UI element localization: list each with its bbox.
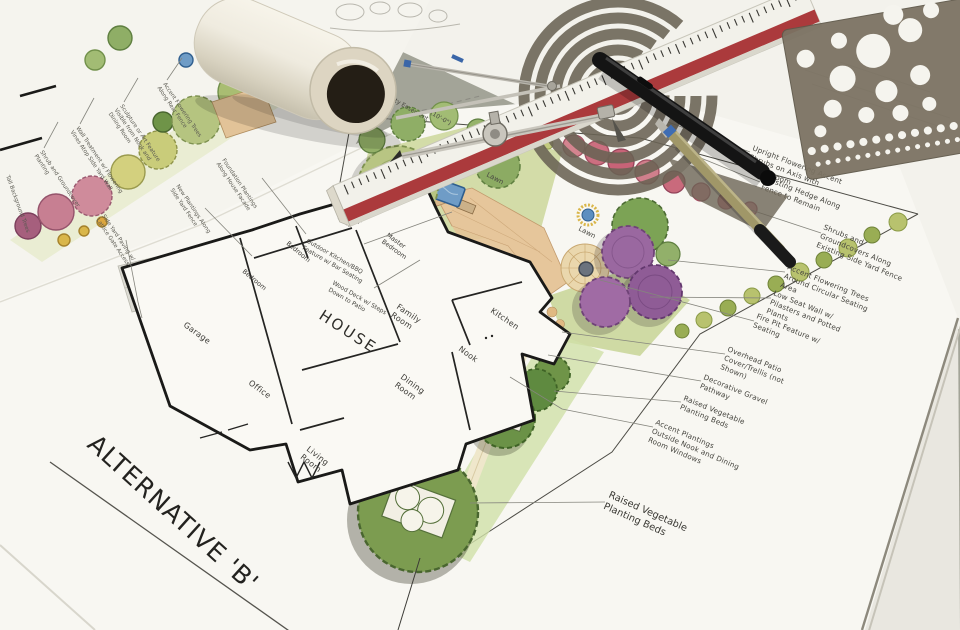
fire-pit-circle bbox=[579, 262, 593, 276]
scene: HOUSE Garage Office Living Room Dining R… bbox=[0, 0, 960, 630]
circle-template bbox=[780, 0, 960, 180]
photo-landscape-plan-desk: HOUSE Garage Office Living Room Dining R… bbox=[0, 0, 960, 630]
divider-tip bbox=[403, 60, 411, 68]
